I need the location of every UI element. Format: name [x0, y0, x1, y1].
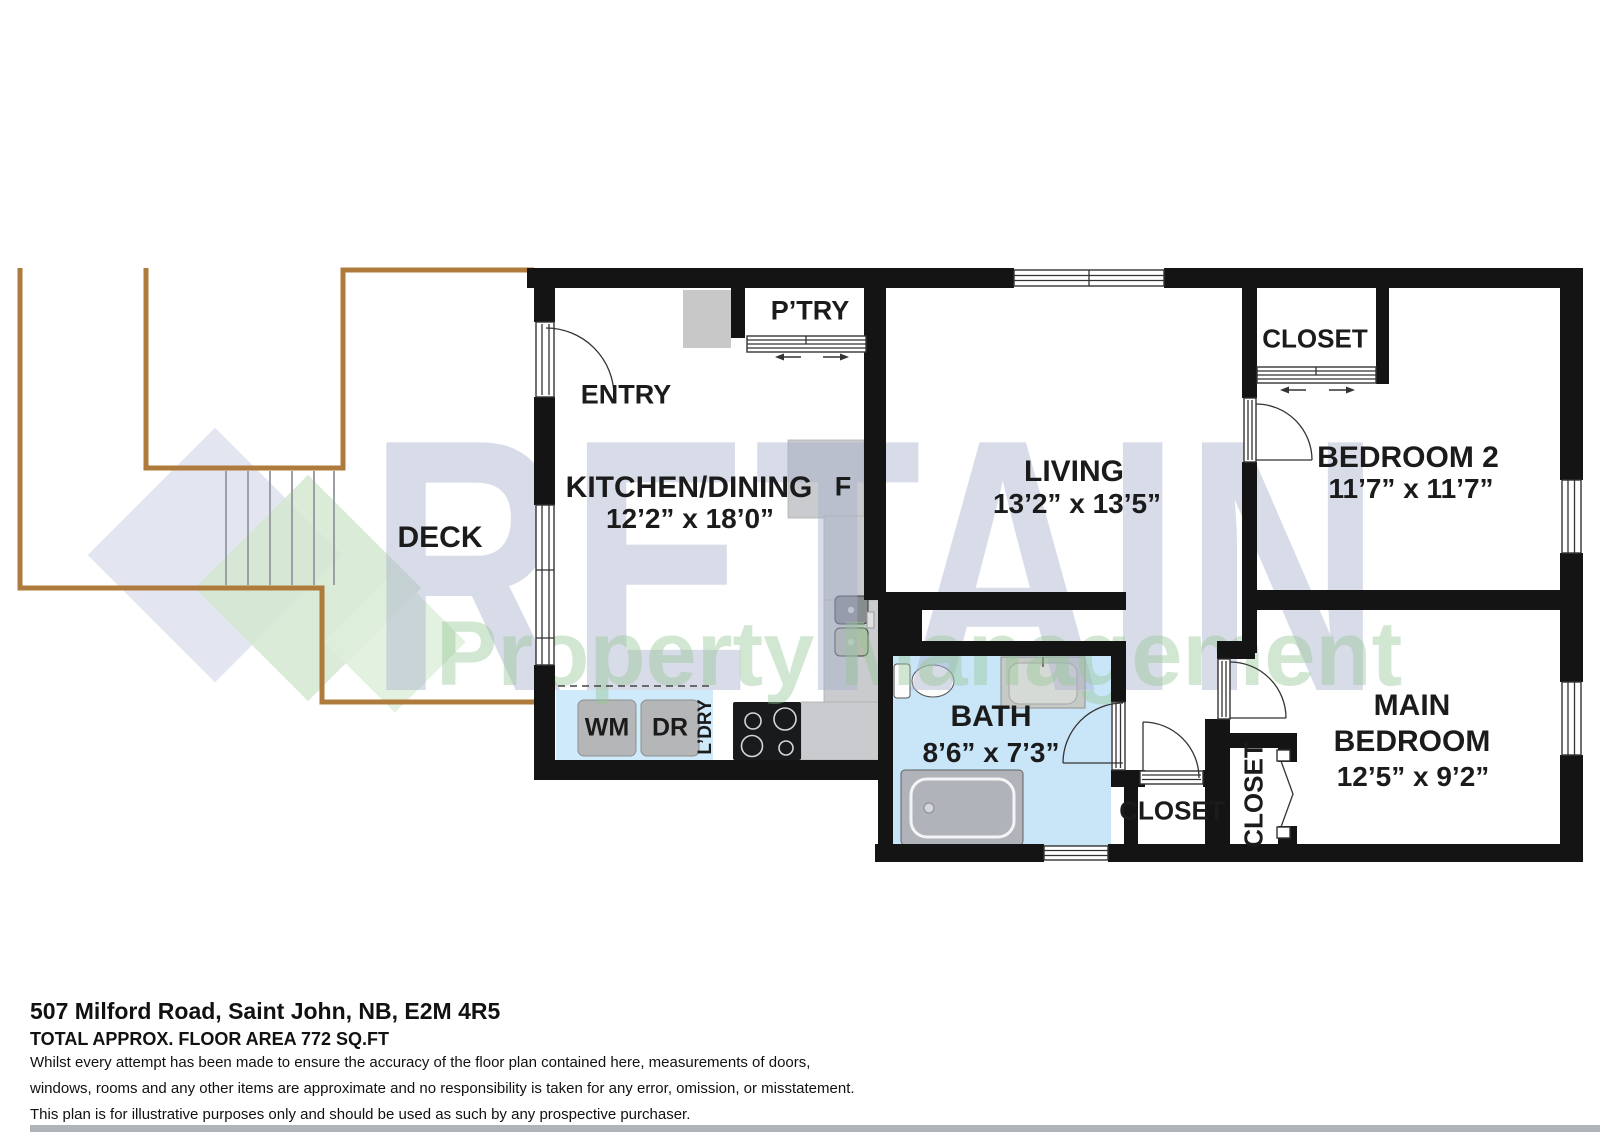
disclaimer-line1: Whilst every attempt has been made to en…: [30, 1054, 810, 1071]
footer: 507 Milford Road, Saint John, NB, E2M 4R…: [0, 0, 1600, 1132]
floor-plan: RETAIN Property Management: [0, 0, 1600, 1132]
disclaimer-line2: windows, rooms and any other items are a…: [30, 1080, 855, 1097]
bottom-edge-bar: [30, 1125, 1600, 1132]
floor-area: TOTAL APPROX. FLOOR AREA 772 SQ.FT: [30, 1029, 389, 1050]
disclaimer-line3: This plan is for illustrative purposes o…: [30, 1106, 690, 1123]
address: 507 Milford Road, Saint John, NB, E2M 4R…: [30, 998, 500, 1025]
